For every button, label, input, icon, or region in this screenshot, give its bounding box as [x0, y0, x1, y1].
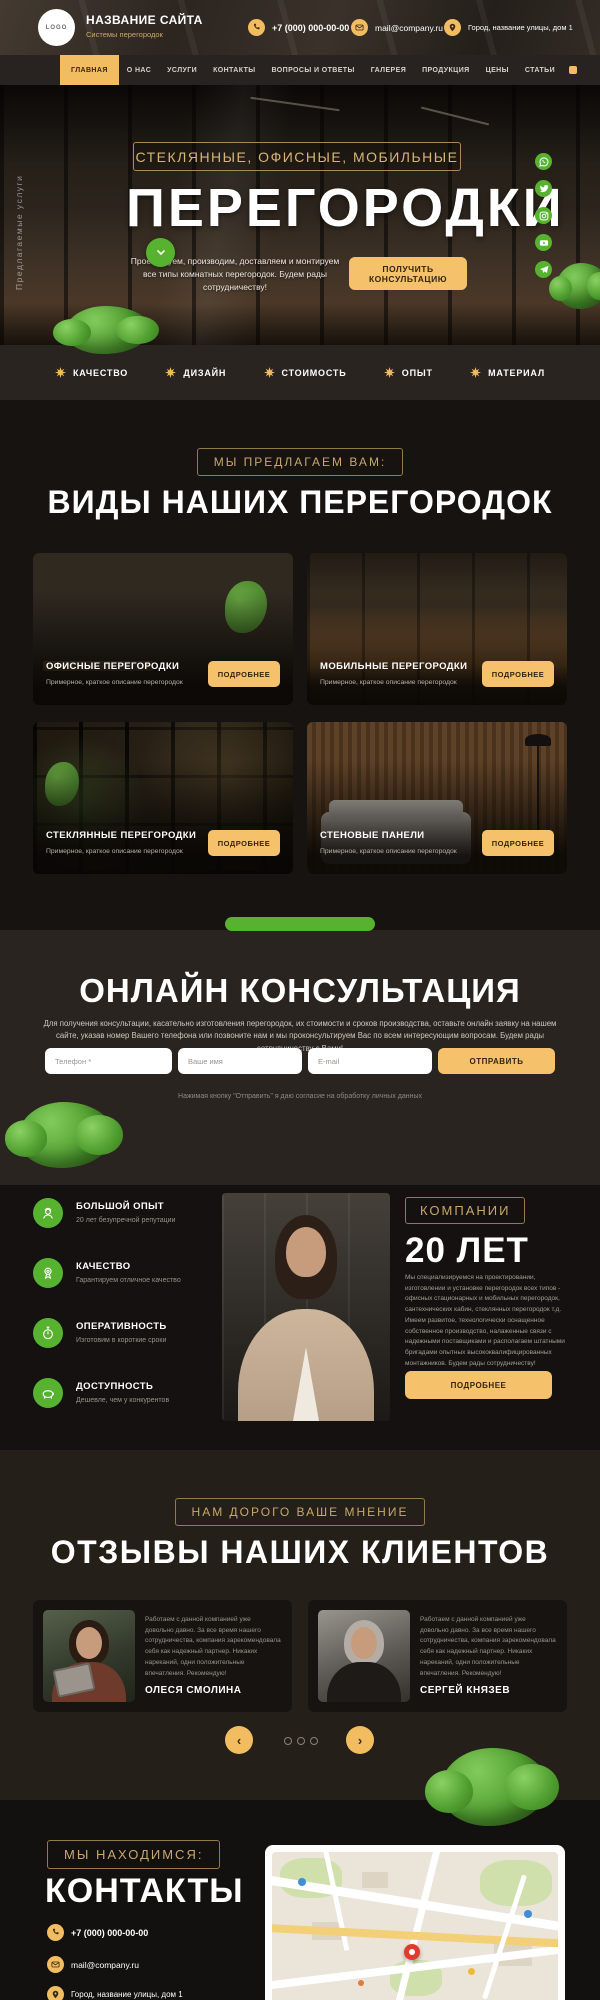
card-desc: Примерное, краткое описание перегородок — [46, 679, 183, 686]
card-mobile-partitions[interactable]: МОБИЛЬНЫЕ ПЕРЕГОРОДКИ Примерное, краткое… — [307, 553, 567, 705]
reviewer-name: ОЛЕСЯ СМОЛИНА — [145, 1685, 242, 1696]
nav-item-produkciya[interactable]: ПРОДУКЦИЯ — [414, 55, 477, 85]
nav-item-uslugi[interactable]: УСЛУГИ — [159, 55, 205, 85]
feature-desc: 20 лет безупречной репутации — [76, 1217, 175, 1224]
medal-icon — [33, 1258, 63, 1288]
piggy-bank-icon — [33, 1378, 63, 1408]
feature-desc: Дешевле, чем у конкурентов — [76, 1397, 169, 1404]
star-icon — [165, 367, 176, 378]
card-title: СТЕКЛЯННЫЕ ПЕРЕГОРОДКИ — [46, 830, 196, 841]
header-email-text: mail@company.ru — [375, 23, 443, 33]
map-poi-blue — [298, 1878, 306, 1886]
more-button[interactable]: ПОДРОБНЕЕ — [482, 830, 554, 856]
logo-text: LOGO — [46, 25, 68, 31]
reviewer-photo — [318, 1610, 410, 1702]
main-nav: ГЛАВНАЯ О НАС УСЛУГИ КОНТАКТЫ ВОПРОСЫ И … — [0, 55, 600, 85]
nav-more-icon[interactable] — [569, 66, 577, 74]
map[interactable] — [265, 1845, 565, 2000]
location-icon — [444, 19, 461, 36]
company-more-button[interactable]: ПОДРОБНЕЕ — [405, 1371, 552, 1399]
header-address-text: Город, название улицы, дом 1 — [468, 23, 573, 32]
feature-experience: БОЛЬШОЙ ОПЫТ 20 лет безупречной репутаци… — [33, 1198, 218, 1228]
strip-label: СТОИМОСТЬ — [282, 368, 347, 378]
card-glass-partitions[interactable]: СТЕКЛЯННЫЕ ПЕРЕГОРОДКИ Примерное, кратко… — [33, 722, 293, 874]
phone-input[interactable] — [45, 1048, 172, 1074]
reviews-badge: НАМ ДОРОГО ВАШЕ МНЕНИЕ — [175, 1498, 426, 1526]
feature-title: ДОСТУПНОСТЬ — [76, 1381, 169, 1392]
map-canvas[interactable] — [272, 1852, 558, 2000]
offer-title: ВИДЫ НАШИХ ПЕРЕГОРОДОК — [0, 484, 600, 521]
get-consultation-button[interactable]: ПОЛУЧИТЬ КОНСУЛЬТАЦИЮ — [349, 257, 467, 290]
scroll-down-button[interactable] — [146, 238, 175, 267]
phone-icon — [248, 19, 265, 36]
card-title: СТЕНОВЫЕ ПАНЕЛИ — [320, 830, 425, 841]
company-section: БОЛЬШОЙ ОПЫТ 20 лет безупречной репутаци… — [0, 1185, 600, 1450]
card-title: МОБИЛЬНЫЕ ПЕРЕГОРОДКИ — [320, 661, 467, 672]
company-badge: КОМПАНИИ — [405, 1197, 525, 1224]
logo[interactable]: LOGO — [38, 9, 75, 46]
nav-item-voprosy[interactable]: ВОПРОСЫ И ОТВЕТЫ — [264, 55, 363, 85]
strip-item-design: ДИЗАЙН — [165, 367, 226, 378]
nav-item-kontakty[interactable]: КОНТАКТЫ — [205, 55, 263, 85]
star-icon — [470, 367, 481, 378]
email-input[interactable] — [308, 1048, 432, 1074]
whatsapp-icon[interactable] — [535, 153, 552, 170]
strip-item-cost: СТОИМОСТЬ — [264, 367, 347, 378]
contact-email-text: mail@company.ru — [71, 1960, 139, 1970]
carousel-dot[interactable] — [297, 1737, 305, 1745]
offer-badge: МЫ ПРЕДЛАГАЕМ ВАМ: — [197, 448, 404, 476]
reviewer-name: СЕРГЕЙ КНЯЗЕВ — [420, 1685, 510, 1696]
header-email[interactable]: mail@company.ru — [351, 19, 443, 36]
chevron-down-icon — [156, 249, 166, 257]
hero-side-label: Предлагаемые услуги — [14, 120, 24, 290]
strip-label: ДИЗАЙН — [183, 368, 226, 378]
manager-photo — [222, 1193, 390, 1421]
hero-kicker-badge: СТЕКЛЯННЫЕ, ОФИСНЫЕ, МОБИЛЬНЫЕ — [133, 142, 461, 171]
header-address: Город, название улицы, дом 1 — [444, 19, 573, 36]
company-text: Мы специализируемся на проектировании, и… — [405, 1273, 569, 1369]
site-header: LOGO НАЗВАНИЕ САЙТА Системы перегородок … — [0, 0, 600, 55]
contact-address-text: Город, название улицы, дом 1 — [71, 1990, 183, 1999]
company-years-title: 20 ЛЕТ — [405, 1231, 569, 1271]
nav-item-galereya[interactable]: ГАЛЕРЕЯ — [363, 55, 414, 85]
mail-icon — [351, 19, 368, 36]
map-poi-yellow — [468, 1968, 475, 1975]
carousel-next-button[interactable]: › — [346, 1726, 374, 1754]
nav-item-glavnaya[interactable]: ГЛАВНАЯ — [60, 55, 119, 85]
strip-item-material: МАТЕРИАЛ — [470, 367, 545, 378]
header-phone-text: +7 (000) 000-00-00 — [272, 23, 349, 33]
site-name: НАЗВАНИЕ САЙТА — [86, 13, 203, 27]
phone-icon — [47, 1924, 64, 1941]
strip-label: ОПЫТ — [402, 368, 433, 378]
map-poi-blue — [524, 1910, 532, 1918]
carousel-dot[interactable] — [284, 1737, 292, 1745]
feature-title: КАЧЕСТВО — [76, 1261, 181, 1272]
contact-phone-text: +7 (000) 000-00-00 — [71, 1928, 148, 1938]
worker-icon — [33, 1198, 63, 1228]
card-title: ОФИСНЫЕ ПЕРЕГОРОДКИ — [46, 661, 179, 672]
feature-desc: Изготовим в короткие сроки — [76, 1337, 167, 1344]
submit-button[interactable]: ОТПРАВИТЬ — [438, 1048, 555, 1074]
partition-cards: ОФИСНЫЕ ПЕРЕГОРОДКИ Примерное, краткое о… — [33, 553, 567, 874]
review-card: Работаем с данной компанией уже довольно… — [308, 1600, 567, 1712]
twitter-icon[interactable] — [535, 180, 552, 197]
more-button[interactable]: ПОДРОБНЕЕ — [482, 661, 554, 687]
company-badge-wrap: КОМПАНИИ — [405, 1197, 569, 1224]
review-text: Работаем с данной компанией уже довольно… — [145, 1615, 281, 1679]
strip-label: МАТЕРИАЛ — [488, 368, 545, 378]
consult-title: ОНЛАЙН КОНСУЛЬТАЦИЯ — [0, 972, 600, 1010]
site-tagline: Системы перегородок — [86, 30, 163, 39]
strip-item-quality: КАЧЕСТВО — [55, 367, 128, 378]
reviewer-photo — [43, 1610, 135, 1702]
feature-title: БОЛЬШОЙ ОПЫТ — [76, 1201, 175, 1212]
review-card: Работаем с данной компанией уже довольно… — [33, 1600, 292, 1712]
review-text: Работаем с данной компанией уже довольно… — [420, 1615, 556, 1679]
location-icon — [47, 1986, 64, 2000]
telegram-icon[interactable] — [535, 261, 552, 278]
star-icon — [55, 367, 66, 378]
nav-item-o-nas[interactable]: О НАС — [119, 55, 159, 85]
consent-note: Нажимая кнопку "Отправить" я даю согласи… — [0, 1093, 600, 1100]
contact-phone[interactable]: +7 (000) 000-00-00 — [47, 1924, 148, 1941]
feature-title: ОПЕРАТИВНОСТЬ — [76, 1321, 167, 1332]
star-icon — [264, 367, 275, 378]
carousel-prev-button[interactable]: ‹ — [225, 1726, 253, 1754]
feature-desc: Гарантируем отличное качество — [76, 1277, 181, 1284]
header-phone[interactable]: +7 (000) 000-00-00 — [248, 19, 349, 36]
instagram-icon[interactable] — [535, 207, 552, 224]
strip-item-experience: ОПЫТ — [384, 367, 433, 378]
card-desc: Примерное, краткое описание перегородок — [46, 848, 183, 855]
contacts-badge: МЫ НАХОДИМСЯ: — [47, 1840, 220, 1869]
card-wall-panels[interactable]: СТЕНОВЫЕ ПАНЕЛИ Примерное, краткое описа… — [307, 722, 567, 874]
card-desc: Примерное, краткое описание перегородок — [320, 848, 457, 855]
card-office-partitions[interactable]: ОФИСНЫЕ ПЕРЕГОРОДКИ Примерное, краткое о… — [33, 553, 293, 705]
contact-address: Город, название улицы, дом 1 — [47, 1986, 183, 2000]
map-poi-orange — [358, 1980, 364, 1986]
contacts-section: МЫ НАХОДИМСЯ: КОНТАКТЫ +7 (000) 000-00-0… — [0, 1800, 600, 2000]
feature-speed: ОПЕРАТИВНОСТЬ Изготовим в короткие сроки — [33, 1318, 218, 1348]
partition-types-section: МЫ ПРЕДЛАГАЕМ ВАМ: ВИДЫ НАШИХ ПЕРЕГОРОДО… — [0, 400, 600, 930]
mail-icon — [47, 1956, 64, 1973]
strip-label: КАЧЕСТВО — [73, 368, 128, 378]
carousel-dot[interactable] — [310, 1737, 318, 1745]
contacts-title: КОНТАКТЫ — [45, 1872, 244, 1911]
map-pin[interactable] — [404, 1944, 420, 1960]
contact-email[interactable]: mail@company.ru — [47, 1956, 139, 1973]
name-input[interactable] — [178, 1048, 302, 1074]
more-button[interactable]: ПОДРОБНЕЕ — [208, 830, 280, 856]
page: LOGO НАЗВАНИЕ САЙТА Системы перегородок … — [0, 0, 600, 2000]
star-icon — [384, 367, 395, 378]
hero-section: Предлагаемые услуги СТЕКЛЯННЫЕ, ОФИСНЫЕ,… — [0, 85, 600, 345]
bush-decoration — [556, 263, 600, 309]
feature-affordability: ДОСТУПНОСТЬ Дешевле, чем у конкурентов — [33, 1378, 218, 1408]
reviews-title: ОТЗЫВЫ НАШИХ КЛИЕНТОВ — [0, 1534, 600, 1571]
features-strip: КАЧЕСТВО ДИЗАЙН СТОИМОСТЬ ОПЫТ МАТЕРИАЛ — [0, 345, 600, 400]
card-desc: Примерное, краткое описание перегородок — [320, 679, 457, 686]
green-banner — [225, 917, 375, 931]
more-button[interactable]: ПОДРОБНЕЕ — [208, 661, 280, 687]
feature-quality: КАЧЕСТВО Гарантируем отличное качество — [33, 1258, 218, 1288]
reviews-section: НАМ ДОРОГО ВАШЕ МНЕНИЕ ОТЗЫВЫ НАШИХ КЛИЕ… — [0, 1450, 600, 1800]
youtube-icon[interactable] — [535, 234, 552, 251]
stopwatch-icon — [33, 1318, 63, 1348]
nav-item-statyi[interactable]: СТАТЬИ — [517, 55, 563, 85]
hero-title: ПЕРЕГОРОДКИ — [126, 181, 565, 235]
nav-item-ceny[interactable]: ЦЕНЫ — [478, 55, 517, 85]
